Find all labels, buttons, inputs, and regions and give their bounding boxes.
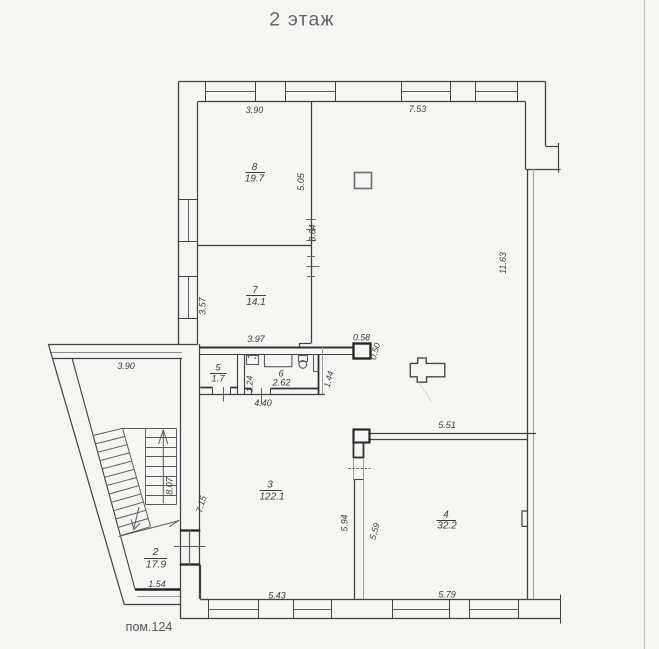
svg-text:5.05: 5.05	[296, 172, 306, 191]
svg-text:2: 2	[152, 546, 159, 558]
svg-text:5.94: 5.94	[340, 514, 350, 531]
svg-text:пом.124: пом.124	[126, 620, 173, 634]
svg-text:14.1: 14.1	[246, 297, 265, 308]
svg-text:1.24: 1.24	[245, 375, 255, 392]
svg-text:8.07: 8.07	[165, 476, 175, 495]
svg-text:3.57: 3.57	[198, 296, 208, 315]
svg-text:5.79: 5.79	[438, 590, 456, 600]
svg-text:5.51: 5.51	[438, 420, 456, 430]
svg-text:8: 8	[252, 162, 258, 173]
svg-text:1.44: 1.44	[322, 370, 336, 389]
svg-text:1.54: 1.54	[148, 579, 166, 589]
svg-text:3.97: 3.97	[247, 334, 266, 344]
svg-text:2 этаж: 2 этаж	[269, 9, 335, 31]
svg-text:0.58: 0.58	[353, 333, 370, 343]
svg-text:19.7: 19.7	[245, 174, 265, 185]
svg-text:7.15: 7.15	[194, 495, 208, 514]
svg-text:4.40: 4.40	[254, 398, 272, 408]
svg-text:2.62: 2.62	[272, 378, 291, 388]
svg-text:5.43: 5.43	[268, 591, 286, 601]
svg-text:3.90: 3.90	[117, 361, 135, 371]
svg-text:1.7: 1.7	[211, 374, 225, 385]
svg-text:5: 5	[215, 363, 221, 374]
svg-text:3: 3	[267, 480, 273, 491]
svg-text:7: 7	[252, 285, 258, 296]
svg-text:5.59: 5.59	[368, 522, 382, 541]
svg-text:11.63: 11.63	[498, 252, 508, 274]
svg-text:7.53: 7.53	[409, 104, 427, 114]
svg-text:8.64: 8.64	[308, 224, 318, 241]
svg-text:3.90: 3.90	[246, 105, 264, 115]
svg-text:32.2: 32.2	[437, 521, 457, 532]
svg-text:4: 4	[443, 510, 449, 521]
svg-text:122.1: 122.1	[259, 492, 284, 503]
svg-text:17.9: 17.9	[146, 559, 167, 571]
